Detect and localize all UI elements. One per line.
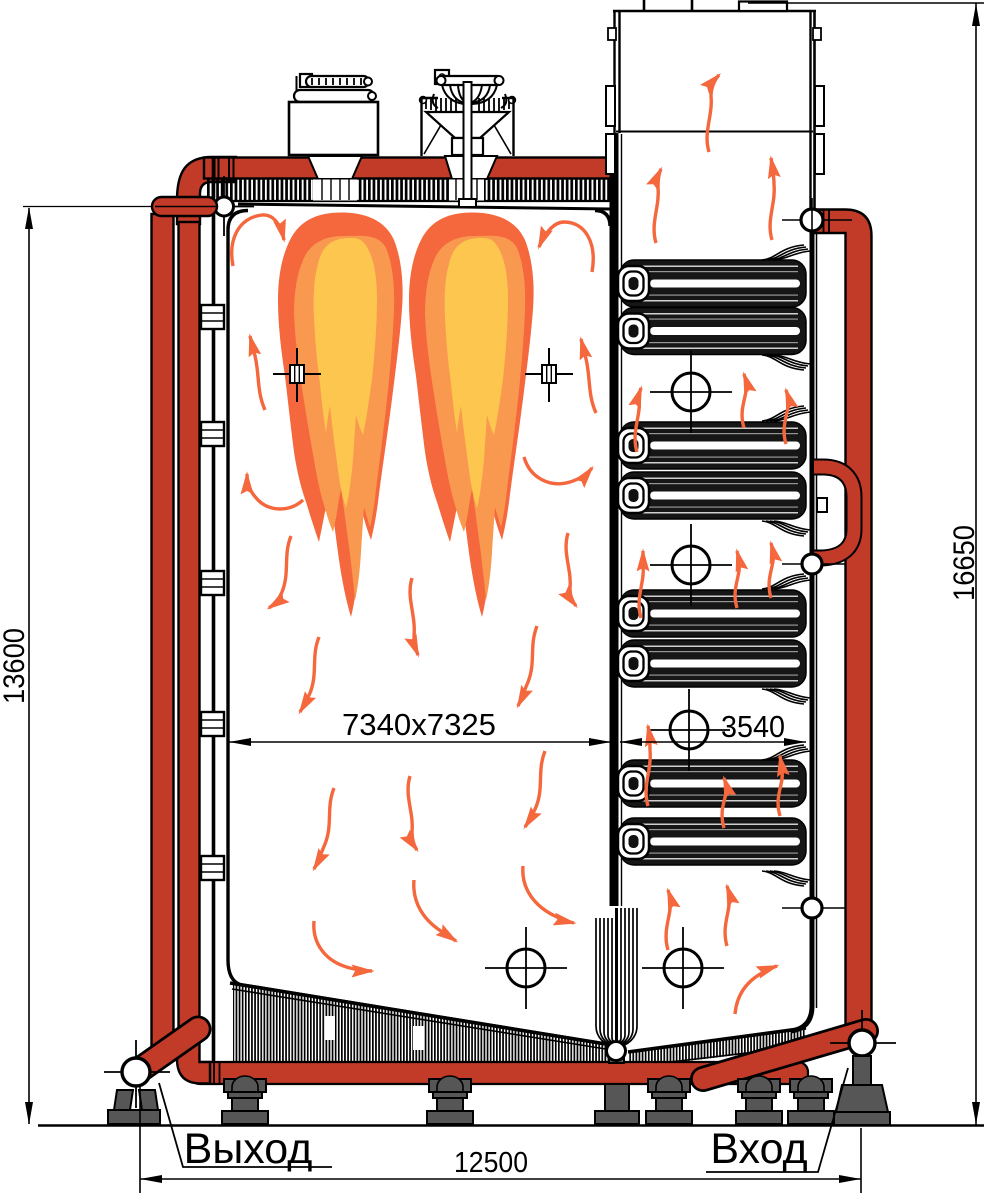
svg-text:12500: 12500 — [454, 1147, 528, 1179]
svg-text:16650: 16650 — [948, 525, 981, 601]
svg-text:Вход: Вход — [710, 1125, 807, 1173]
svg-text:13600: 13600 — [0, 628, 31, 704]
svg-text:3540: 3540 — [721, 709, 785, 744]
svg-text:Выход: Выход — [184, 1125, 313, 1173]
svg-text:7340x7325: 7340x7325 — [342, 707, 496, 742]
